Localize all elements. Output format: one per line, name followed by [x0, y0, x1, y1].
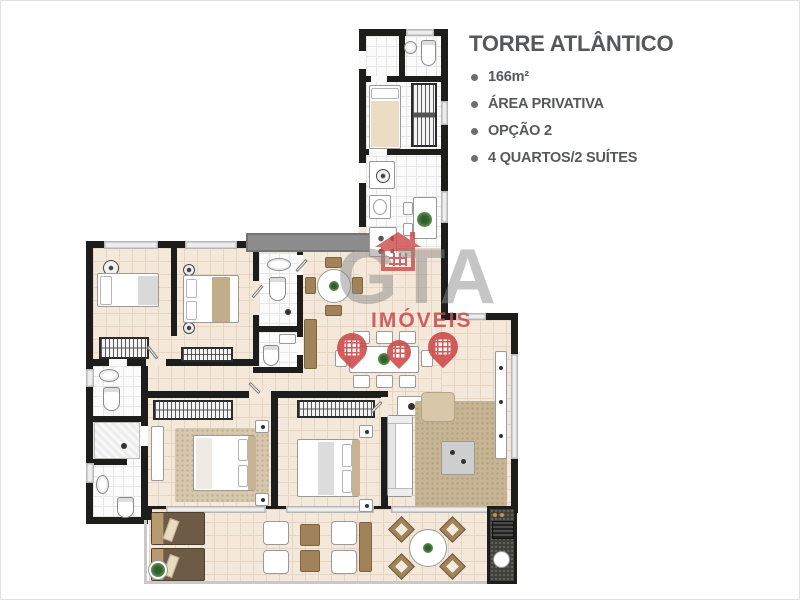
- feature-text: OPÇÃO 2: [488, 123, 552, 139]
- pillow: [186, 301, 197, 320]
- wardrobe: [181, 347, 233, 362]
- feature-text: 4 QUARTOS/2 SUÍTES: [488, 150, 637, 166]
- blanket: [212, 277, 230, 322]
- window: [441, 101, 448, 125]
- lamp-icon: [408, 403, 415, 410]
- sink-icon: [267, 258, 291, 271]
- nightstand: [255, 420, 269, 433]
- sofa-arm: [388, 416, 412, 424]
- headboard: [352, 440, 360, 496]
- barbecue-sink: [493, 551, 510, 568]
- window: [104, 241, 158, 249]
- shower: [94, 422, 140, 459]
- window: [185, 241, 237, 249]
- feature-text: 166m²: [488, 69, 529, 85]
- plant-icon: [151, 563, 165, 577]
- lamp-icon: [261, 425, 265, 429]
- reading-light-icon: [183, 322, 195, 334]
- window: [456, 313, 486, 320]
- chair: [305, 277, 316, 294]
- chair: [403, 223, 413, 236]
- interior-wall: [271, 398, 278, 506]
- sink-icon: [99, 369, 119, 382]
- chair: [335, 350, 347, 367]
- interior-wall: [253, 326, 303, 332]
- cushion: [446, 523, 459, 536]
- bullet-icon: [471, 74, 478, 81]
- pillow: [342, 470, 352, 493]
- lamp-icon: [365, 430, 369, 434]
- washer-drum: [376, 169, 390, 183]
- interior-wall: [253, 367, 303, 373]
- chair: [399, 331, 416, 344]
- sideboard: [304, 319, 317, 369]
- balcony-chair: [263, 521, 289, 545]
- blanket: [196, 438, 212, 489]
- washing-machine-icon: [369, 161, 395, 189]
- bullet-icon: [471, 155, 478, 162]
- nightstand: [359, 425, 373, 438]
- window: [86, 369, 94, 387]
- sink-icon: [404, 41, 417, 54]
- door-gap: [146, 359, 166, 366]
- door-gap: [359, 51, 366, 69]
- chair: [376, 375, 393, 388]
- planter: [246, 233, 373, 252]
- door-gap: [371, 76, 387, 82]
- door-gap: [381, 397, 388, 417]
- chair: [376, 331, 393, 344]
- balcony-railing: [144, 581, 516, 584]
- sun-lounger: [151, 512, 205, 545]
- wardrobe: [99, 337, 149, 359]
- wardrobe: [297, 400, 375, 418]
- side-table: [300, 524, 320, 546]
- list-item: 4 QUARTOS/2 SUÍTES: [471, 150, 709, 166]
- chair: [399, 375, 416, 388]
- balcony-chair: [263, 550, 289, 574]
- door-gap: [359, 163, 366, 183]
- tv-rack: [495, 351, 507, 459]
- bullet-icon: [471, 101, 478, 108]
- centerpiece: [329, 281, 339, 291]
- cushion: [446, 560, 459, 573]
- double-bed: [193, 435, 255, 491]
- sink-icon: [96, 475, 109, 494]
- balcony-railing: [144, 509, 147, 583]
- info-panel: TORRE ATLÂNTICO 166m² ÁREA PRIVATIVA OPÇ…: [469, 31, 709, 177]
- blanket: [138, 276, 158, 305]
- pillow: [186, 279, 197, 298]
- closet-panel: [151, 426, 164, 481]
- laundry-sink: [369, 195, 391, 219]
- single-bed: [97, 273, 159, 307]
- chair: [353, 375, 370, 388]
- toilet-icon: [263, 345, 279, 366]
- door-gap: [297, 337, 303, 355]
- headboard: [248, 436, 256, 490]
- chair: [353, 331, 370, 344]
- decor: [450, 450, 455, 455]
- sofa: [387, 415, 413, 497]
- pillow: [238, 465, 248, 487]
- feature-list: 166m² ÁREA PRIVATIVA OPÇÃO 2 4 QUARTOS/2…: [471, 69, 709, 166]
- balcony-chair: [331, 550, 357, 574]
- stove-icon: [369, 227, 397, 257]
- coffee-table: [441, 441, 475, 475]
- interior-wall: [171, 248, 177, 336]
- chair: [325, 305, 342, 316]
- toilet-icon: [269, 277, 286, 301]
- wardrobe: [153, 400, 233, 420]
- decor: [499, 434, 503, 438]
- blanket: [371, 101, 399, 147]
- pillow: [238, 439, 248, 461]
- window: [406, 29, 434, 36]
- bench: [359, 522, 372, 572]
- door-gap: [369, 149, 387, 155]
- vanity-counter: [279, 334, 296, 344]
- cushion: [395, 560, 408, 573]
- towel: [163, 518, 180, 542]
- pillow: [371, 88, 399, 99]
- burners: [372, 230, 394, 254]
- lamp-icon: [261, 498, 265, 502]
- door-gap: [141, 426, 148, 446]
- centerpiece: [423, 543, 433, 553]
- sofa-arm: [388, 488, 412, 496]
- centerpiece: [378, 353, 390, 365]
- burner-knob: [500, 513, 504, 517]
- bullet-icon: [471, 128, 478, 135]
- pillow: [100, 276, 112, 305]
- window: [441, 191, 448, 223]
- double-bed: [297, 439, 359, 497]
- side-table: [300, 550, 320, 572]
- page-title: TORRE ATLÂNTICO: [469, 31, 709, 57]
- list-item: OPÇÃO 2: [471, 123, 709, 139]
- window: [511, 354, 518, 459]
- chair: [325, 257, 342, 268]
- chair: [421, 350, 433, 367]
- door-gap: [109, 359, 127, 366]
- double-bed: [183, 275, 239, 323]
- toilet-icon: [421, 40, 436, 66]
- decor: [499, 400, 503, 404]
- lounger-arm: [152, 513, 164, 544]
- toilet-icon: [103, 387, 120, 411]
- cushion: [395, 523, 408, 536]
- feature-text: ÁREA PRIVATIVA: [488, 96, 604, 112]
- shower-head-icon: [121, 443, 127, 449]
- shower-head-icon: [285, 309, 291, 315]
- armchair: [421, 392, 455, 422]
- window: [86, 463, 94, 483]
- balcony-chair: [331, 521, 357, 545]
- decor: [461, 459, 466, 464]
- interior-wall: [93, 459, 127, 465]
- blanket: [318, 442, 334, 495]
- chair: [403, 202, 413, 215]
- wardrobe: [411, 83, 437, 147]
- single-bed: [369, 85, 401, 149]
- list-item: 166m²: [471, 69, 709, 85]
- sofa-back: [388, 416, 396, 496]
- decor: [499, 366, 503, 370]
- nightstand: [255, 493, 269, 506]
- chair: [352, 277, 363, 294]
- nightstand: [359, 499, 373, 512]
- plant-icon: [417, 212, 432, 227]
- grill-icon: [492, 521, 514, 539]
- basin: [373, 199, 387, 215]
- interior-wall: [399, 36, 405, 82]
- barbecue-counter: [490, 509, 514, 581]
- list-item: ÁREA PRIVATIVA: [471, 96, 709, 112]
- burner-knob: [493, 513, 497, 517]
- lamp-icon: [365, 504, 369, 508]
- floor-plan-image: TORRE ATLÂNTICO 166m² ÁREA PRIVATIVA OPÇ…: [0, 0, 800, 600]
- pillow: [342, 444, 352, 467]
- toilet-icon: [117, 497, 134, 518]
